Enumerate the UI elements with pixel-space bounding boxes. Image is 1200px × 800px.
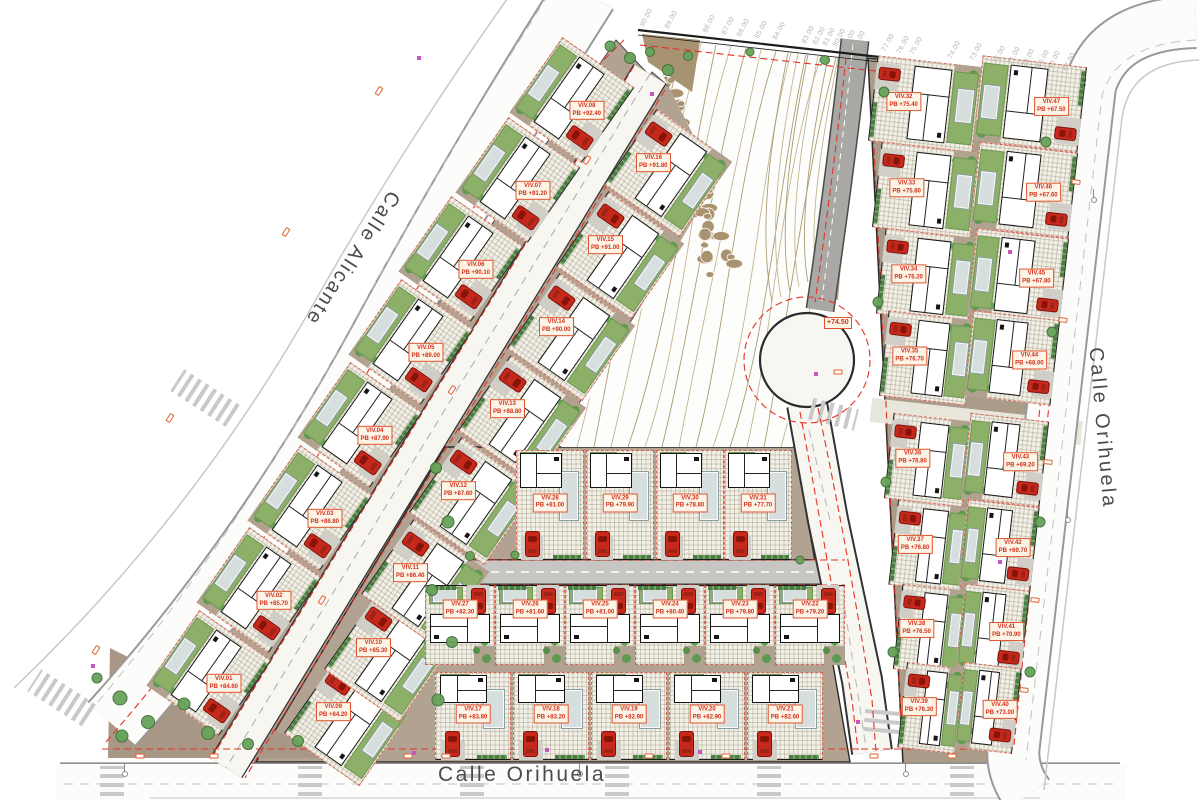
site-plan-canvas: VIV.01PB +84.60VIV.02PB +85.70VIV.03PB +… <box>0 0 1200 800</box>
roundabout <box>760 313 854 407</box>
site-plan-drawing <box>0 0 1200 800</box>
